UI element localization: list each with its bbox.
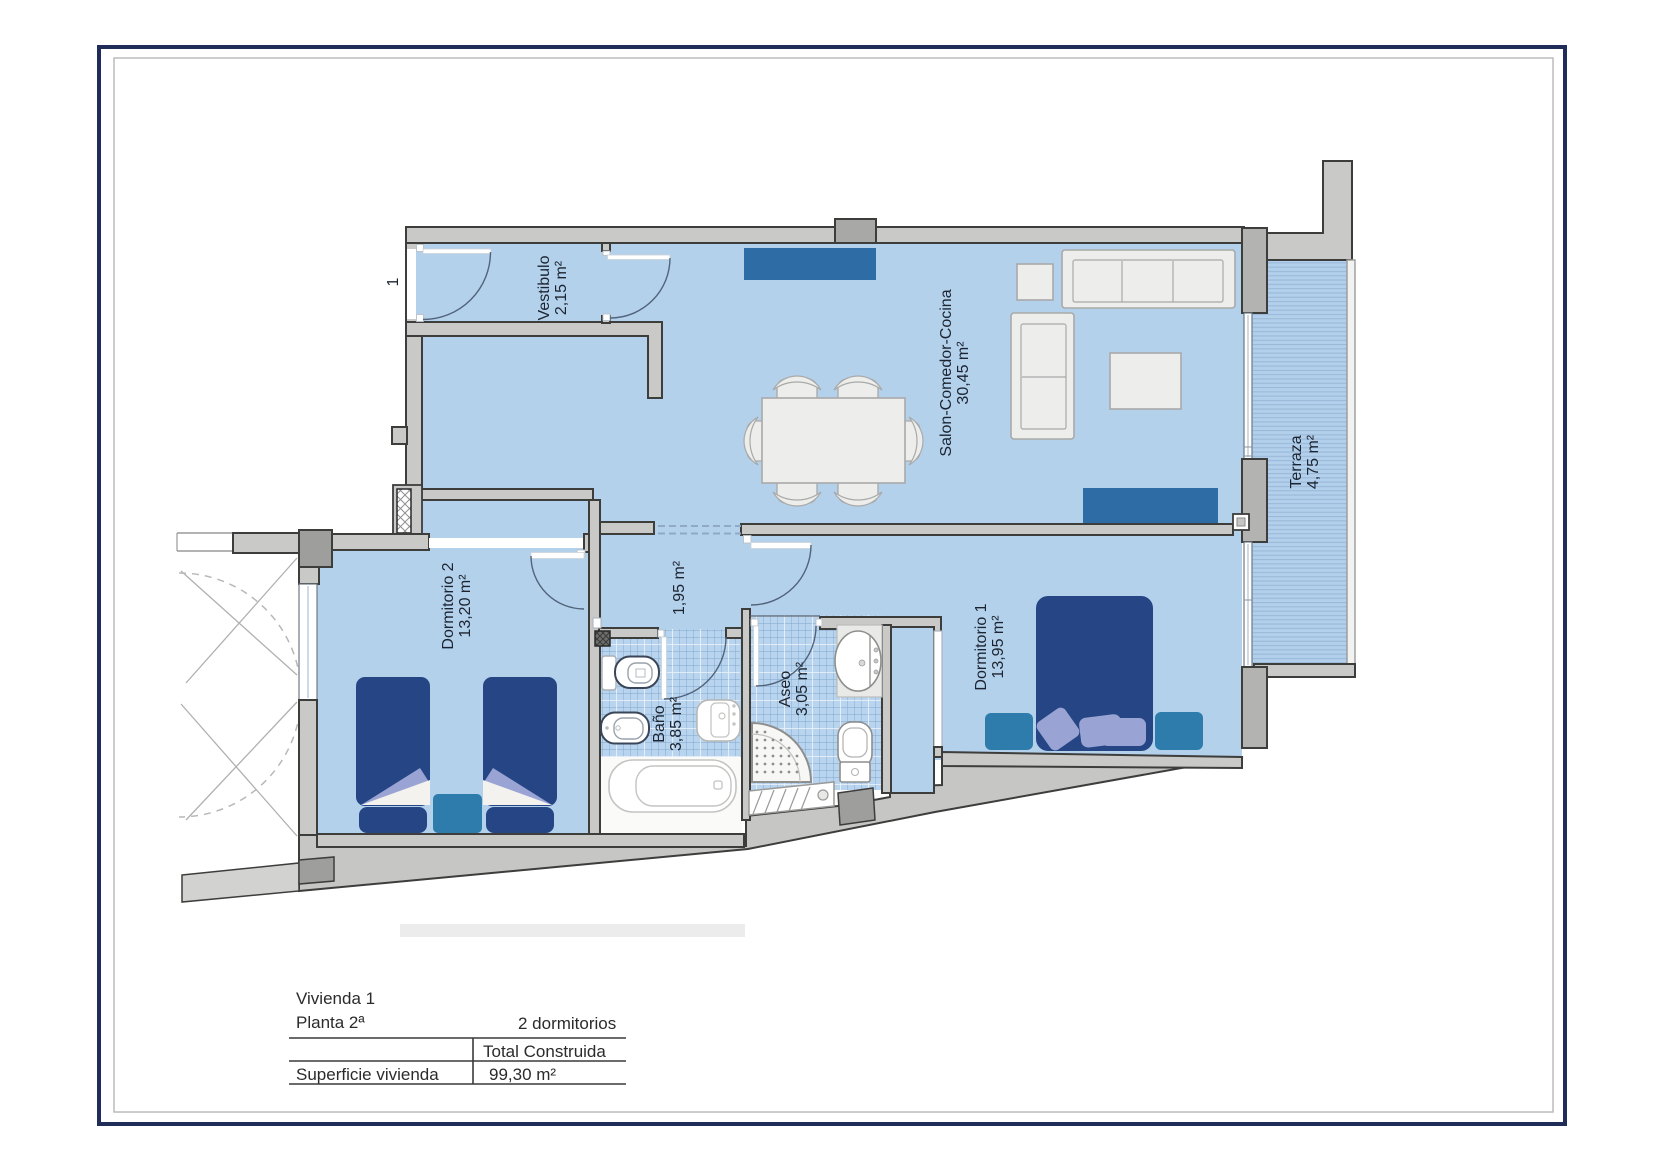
svg-text:3,05 m²: 3,05 m² <box>794 661 811 716</box>
svg-text:1: 1 <box>385 277 402 286</box>
svg-text:Dormitorio 1: Dormitorio 1 <box>973 603 990 690</box>
svg-text:Superficie vivienda: Superficie vivienda <box>296 1065 439 1084</box>
svg-text:Total Construida: Total Construida <box>483 1042 606 1061</box>
svg-text:2 dormitorios: 2 dormitorios <box>518 1014 616 1033</box>
svg-text:Vivienda 1: Vivienda 1 <box>296 989 375 1008</box>
svg-text:2,15 m²: 2,15 m² <box>553 260 570 315</box>
svg-text:Dormitorio 2: Dormitorio 2 <box>440 562 457 649</box>
svg-text:3,85 m²: 3,85 m² <box>668 696 685 751</box>
svg-text:Planta 2ª: Planta 2ª <box>296 1013 365 1032</box>
svg-text:Aseo: Aseo <box>777 671 794 708</box>
svg-text:13,20 m²: 13,20 m² <box>457 574 474 638</box>
svg-text:13,95 m²: 13,95 m² <box>990 615 1007 679</box>
svg-text:1,95 m²: 1,95 m² <box>671 560 688 615</box>
svg-text:Baño: Baño <box>651 705 668 742</box>
svg-text:Terraza: Terraza <box>1288 435 1305 488</box>
svg-text:4,75 m²: 4,75 m² <box>1305 434 1322 489</box>
svg-text:30,45 m²: 30,45 m² <box>955 341 972 405</box>
svg-text:Vestibulo: Vestibulo <box>536 255 553 320</box>
svg-text:99,30 m²: 99,30 m² <box>489 1065 556 1084</box>
svg-text:Salon-Comedor-Cocina: Salon-Comedor-Cocina <box>938 289 955 456</box>
